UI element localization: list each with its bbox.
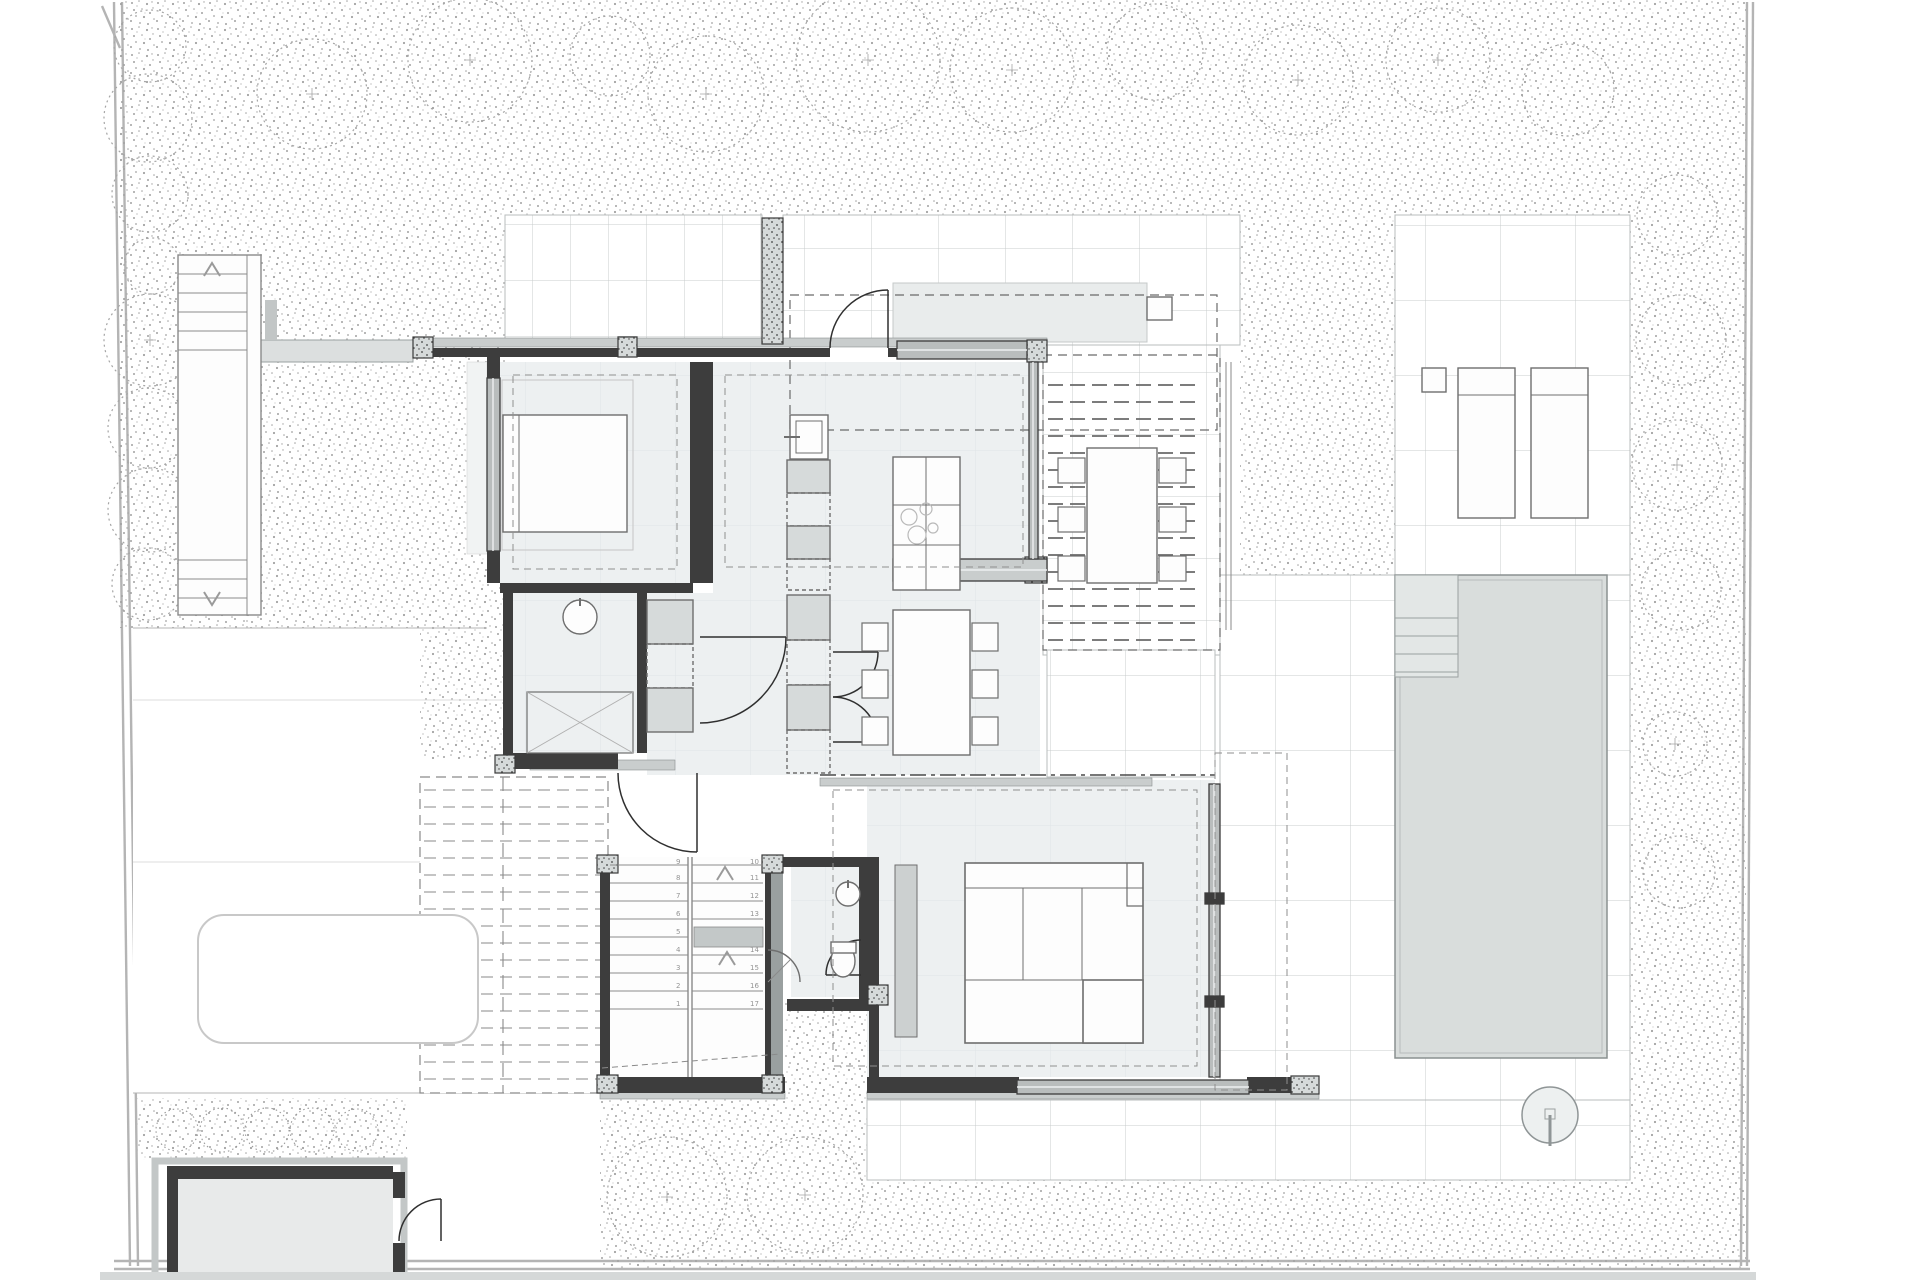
wall-garage-west <box>167 1179 178 1280</box>
pier <box>762 1075 783 1093</box>
street-edge <box>100 1272 1756 1280</box>
garden-patch <box>785 1002 869 1093</box>
pier <box>868 985 888 1005</box>
street-band <box>100 1272 1756 1280</box>
wall-wc-south <box>787 999 869 1011</box>
pool-steps <box>1395 575 1458 677</box>
stair-landing <box>694 927 763 947</box>
wall-living-south-1 <box>867 1077 1019 1093</box>
wall-bath-hall <box>637 593 647 753</box>
wall-living-west <box>869 857 879 1093</box>
stair-details-item: 15 <box>750 964 759 972</box>
entrance-porch <box>893 283 1147 342</box>
outdoor-chair <box>1159 507 1186 532</box>
bed <box>503 415 627 532</box>
wall-west-bottom <box>487 551 500 583</box>
garden-mid-right <box>1240 215 1395 577</box>
east-walk <box>1047 650 1215 777</box>
garden-courtyard <box>600 1093 867 1268</box>
terrace-north-west <box>505 215 762 345</box>
stair-details-item: 2 <box>676 982 680 990</box>
wall-stair-east <box>765 857 771 1079</box>
wall-entry-south <box>503 753 618 769</box>
stair-details-item: 17 <box>750 1000 759 1008</box>
pier <box>495 755 515 773</box>
stair-details-item: 6 <box>676 910 681 918</box>
swimming-pool <box>1395 575 1607 1058</box>
pier <box>618 337 637 357</box>
stair-details-item: 12 <box>750 892 759 900</box>
kitchen-cabinet <box>787 460 830 493</box>
pantry-cabinet <box>787 595 830 640</box>
wall-bath-west <box>503 593 513 755</box>
outdoor-chair <box>1058 556 1085 581</box>
wall-stair-south <box>600 1077 785 1093</box>
fin-wall <box>762 218 783 344</box>
stair-details-item: 10 <box>750 858 759 866</box>
stair-details-item: 11 <box>750 874 759 882</box>
south-apron <box>867 1100 1630 1180</box>
pier <box>762 855 783 873</box>
wall-north-jamb <box>888 348 897 357</box>
garden-top <box>120 0 1746 215</box>
dining-chair <box>862 670 888 698</box>
wall-garage-east-1 <box>393 1172 405 1198</box>
pier <box>597 855 618 873</box>
stair-details-item: 5 <box>676 928 680 936</box>
dining-chair <box>972 717 998 745</box>
garden-right-strip <box>1630 215 1746 1268</box>
dining-chair <box>972 623 998 651</box>
floor-plan-page: 1234567891011121314151617 <box>0 0 1920 1280</box>
wall-wc-north <box>783 857 869 867</box>
wardrobe <box>647 600 693 644</box>
ottoman <box>1083 980 1143 1043</box>
pier <box>1027 340 1047 362</box>
garage-floor <box>178 1179 393 1280</box>
stair-details-item: 9 <box>676 858 680 866</box>
garden-bottom <box>867 1180 1630 1268</box>
stair-details-item: 8 <box>676 874 680 882</box>
dining-chair <box>972 670 998 698</box>
west-planting-strip <box>467 362 487 554</box>
dining-chair <box>862 623 888 651</box>
wall-stair-east-gray <box>771 857 783 1079</box>
stair-details-item: 13 <box>750 910 759 918</box>
dining-chair <box>862 717 888 745</box>
planter <box>1147 297 1172 320</box>
slider-sill <box>820 778 1152 786</box>
outdoor-table <box>1087 448 1157 583</box>
kitchen-cabinet <box>787 526 830 559</box>
garden-bath-side <box>420 628 505 759</box>
stair-details-item: 3 <box>676 964 680 972</box>
outdoor-chair <box>1159 556 1186 581</box>
sun-lounger <box>1531 368 1588 518</box>
stair-details-item: 7 <box>676 892 680 900</box>
wc-cistern <box>831 942 856 953</box>
wall-stair-west <box>600 857 610 1079</box>
tv-cabinet <box>895 865 917 1037</box>
stair-details-item: 1 <box>676 1000 680 1008</box>
sun-lounger <box>1458 368 1515 518</box>
pier <box>413 337 433 358</box>
wall-bed-bath <box>500 583 693 593</box>
pier <box>1291 1076 1319 1094</box>
wardrobe <box>647 688 693 732</box>
wall-core <box>690 362 713 583</box>
stair-details-item: 4 <box>676 946 681 954</box>
outdoor-chair <box>1159 458 1186 483</box>
dining-table <box>893 610 970 755</box>
garden-stair <box>178 255 261 615</box>
stair-details-item: 16 <box>750 982 759 990</box>
stair-details-item: 14 <box>750 946 759 954</box>
side-table <box>1422 368 1446 392</box>
outdoor-chair <box>1058 458 1085 483</box>
pantry-cabinet <box>787 685 830 730</box>
garden-stair-outline <box>178 255 261 615</box>
outdoor-chair <box>1058 507 1085 532</box>
pier <box>597 1075 618 1093</box>
wall-garage-north <box>167 1166 393 1179</box>
garden-wall-stub <box>265 300 277 340</box>
bridge-path <box>247 340 413 362</box>
car <box>198 915 478 1043</box>
floor-plan: 1234567891011121314151617 <box>0 0 1920 1280</box>
